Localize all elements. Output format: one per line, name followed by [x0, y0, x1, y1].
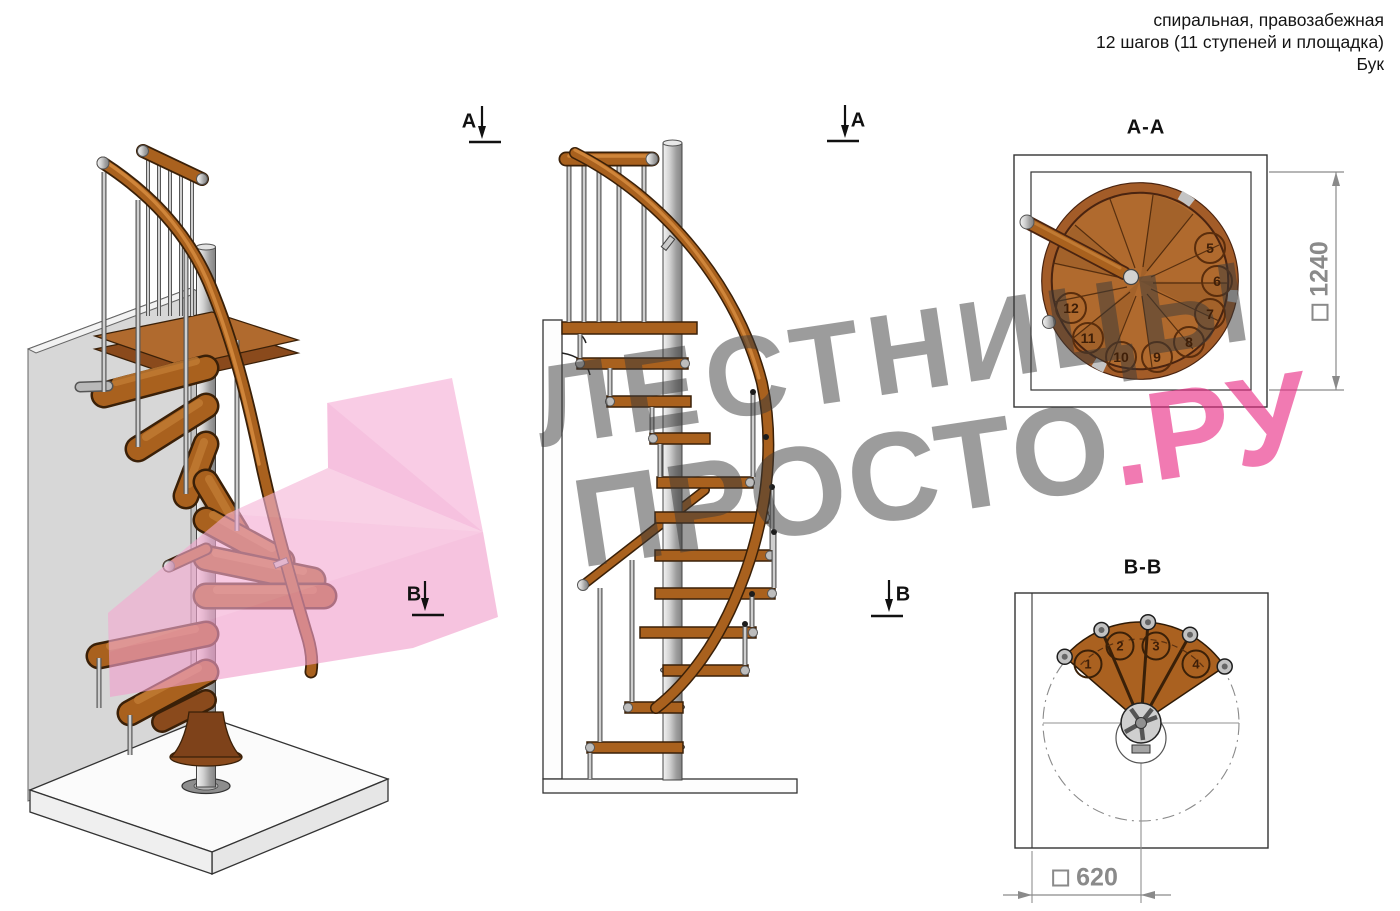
- aa-step-number: 6: [1213, 273, 1221, 289]
- header-steps: 12 шагов (11 ступеней и площадка): [1096, 31, 1384, 53]
- marker-letter-b-iso: B: [407, 584, 421, 607]
- section-bb-title: B-B: [1124, 557, 1163, 580]
- bb-step-number: 3: [1152, 639, 1159, 654]
- square-symbol-icon: [1312, 304, 1329, 321]
- bb-step-number: 4: [1192, 657, 1199, 672]
- iso-3d-view: [28, 146, 388, 875]
- marker-letter-a-front: A: [851, 110, 865, 133]
- dimension-bb-value: 620: [1076, 864, 1118, 893]
- marker-letter-b-front: B: [896, 584, 910, 607]
- aa-step-number: 12: [1063, 300, 1079, 316]
- dimension-1240: 1240: [1306, 241, 1335, 321]
- header-type: спиральная, правозабежная: [1096, 9, 1384, 31]
- dimension-620: 620: [1052, 864, 1118, 893]
- aa-step-number: 9: [1153, 349, 1161, 365]
- bb-step-number: 1: [1084, 657, 1091, 672]
- marker-letter-a-iso: A: [462, 111, 476, 134]
- aa-step-number: 11: [1081, 330, 1096, 346]
- aa-step-number: 8: [1185, 334, 1193, 350]
- bb-step-number: 2: [1116, 639, 1123, 654]
- drawing-header: спиральная, правозабежная 12 шагов (11 с…: [1096, 9, 1384, 75]
- aa-step-number: 10: [1113, 349, 1129, 365]
- aa-step-number: 5: [1206, 240, 1214, 256]
- square-symbol-icon: [1052, 870, 1069, 887]
- drawing-sheet: ЛЕСТНИЦЫ ПРОСТО.РУ спиральная, правозабе…: [0, 0, 1400, 911]
- dimension-aa-value: 1240: [1306, 241, 1335, 297]
- aa-step-number: 7: [1206, 306, 1214, 322]
- section-bb-drawing: [1003, 593, 1268, 903]
- watermark-ru: .РУ: [1100, 344, 1321, 514]
- header-material: Бук: [1096, 53, 1384, 75]
- section-aa-title: A-A: [1127, 117, 1166, 140]
- floor-section: [543, 779, 797, 793]
